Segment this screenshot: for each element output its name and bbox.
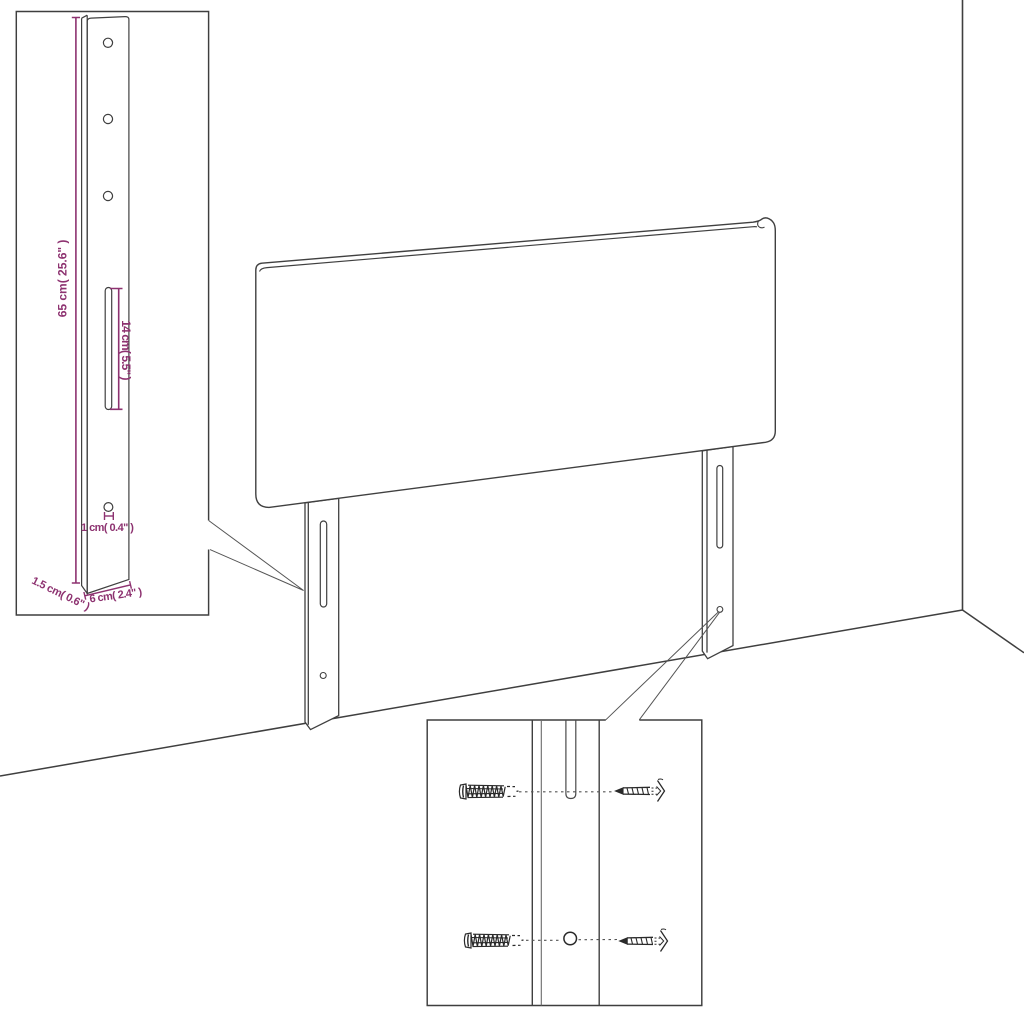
svg-text:1 cm( 0.4" ): 1 cm( 0.4" ) <box>81 522 134 534</box>
svg-text:65 cm( 25.6" ): 65 cm( 25.6" ) <box>55 240 69 318</box>
svg-text:14 cm( 5.5" ): 14 cm( 5.5" ) <box>119 320 133 380</box>
